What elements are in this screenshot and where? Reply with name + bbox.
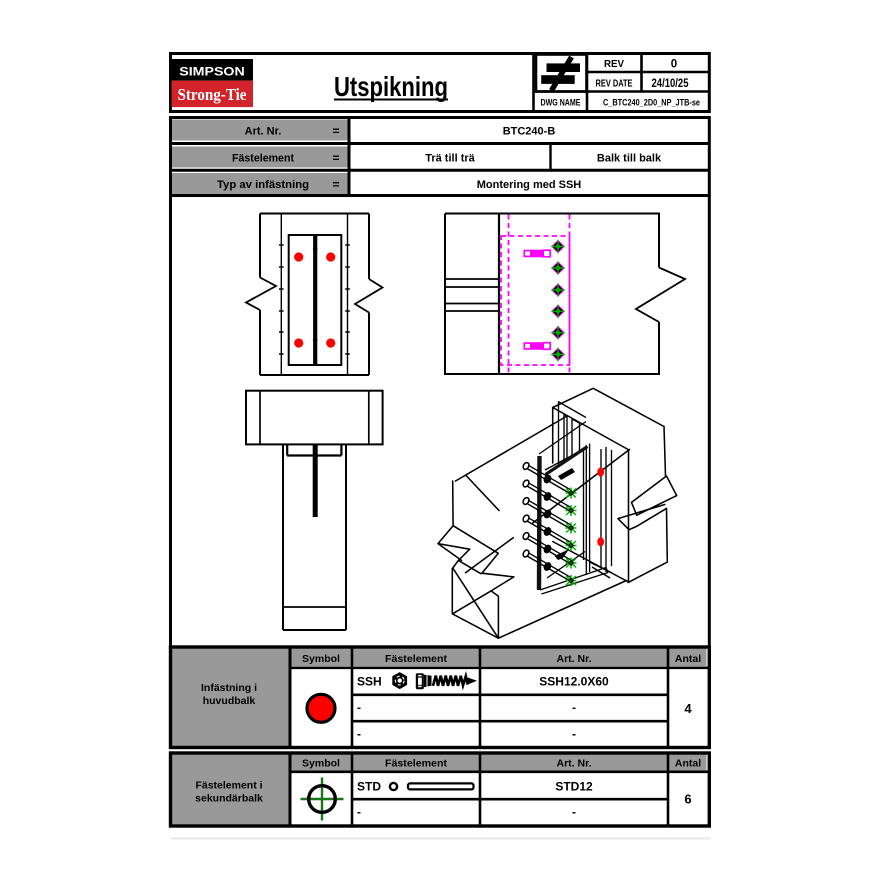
svg-text:6: 6 [684, 792, 691, 807]
svg-text:Art. Nr.: Art. Nr. [556, 758, 591, 770]
svg-text:=: = [332, 178, 339, 192]
svg-text:STD12: STD12 [555, 780, 593, 794]
svg-text:Infästning i: Infästning i [201, 682, 257, 694]
svg-text:Antal: Antal [675, 758, 701, 770]
svg-text:Antal: Antal [675, 653, 701, 665]
svg-text:Fästelement: Fästelement [232, 153, 294, 165]
svg-text:Art. Nr.: Art. Nr. [556, 653, 591, 665]
svg-text:-: - [572, 727, 576, 741]
svg-text:huvudbalk: huvudbalk [203, 695, 256, 707]
svg-text:REV: REV [604, 58, 624, 70]
svg-text:Symbol: Symbol [302, 653, 340, 665]
svg-text:SIMPSON: SIMPSON [179, 65, 245, 79]
svg-text:SSH: SSH [357, 675, 382, 689]
svg-text:-: - [572, 701, 576, 715]
svg-text:Symbol: Symbol [302, 758, 340, 770]
svg-text:Fästelement: Fästelement [385, 758, 448, 770]
svg-text:0: 0 [671, 59, 677, 71]
svg-text:Typ av infästning: Typ av infästning [217, 179, 309, 191]
svg-text:-: - [357, 805, 361, 819]
svg-text:C_BTC240_2D0_NP_JTB-se: C_BTC240_2D0_NP_JTB-se [603, 98, 700, 109]
svg-text:24/10/25: 24/10/25 [652, 78, 689, 90]
svg-text:Fästelement: Fästelement [385, 653, 448, 665]
svg-text:STD: STD [357, 780, 381, 794]
svg-text:Montering med SSH: Montering med SSH [477, 179, 582, 191]
svg-text:Art. Nr.: Art. Nr. [245, 126, 282, 138]
svg-text:=: = [332, 124, 339, 138]
svg-text:DWG NAME: DWG NAME [541, 98, 581, 109]
svg-text:SSH12.0X60: SSH12.0X60 [539, 675, 609, 689]
svg-text:Fästelement i: Fästelement i [195, 780, 262, 792]
svg-text:-: - [357, 701, 361, 715]
svg-text:sekundärbalk: sekundärbalk [195, 793, 263, 805]
svg-text:Strong-Tie: Strong-Tie [178, 85, 247, 104]
svg-text:4: 4 [684, 701, 692, 716]
svg-text:-: - [357, 727, 361, 741]
svg-text:=: = [332, 151, 339, 165]
svg-text:BTC240-B: BTC240-B [503, 126, 556, 138]
svg-text:-: - [572, 805, 576, 819]
svg-text:Trä till trä: Trä till trä [425, 153, 475, 165]
svg-text:REV DATE: REV DATE [596, 78, 633, 90]
svg-text:Utspikning: Utspikning [334, 71, 448, 102]
svg-text:Balk till balk: Balk till balk [597, 153, 662, 165]
